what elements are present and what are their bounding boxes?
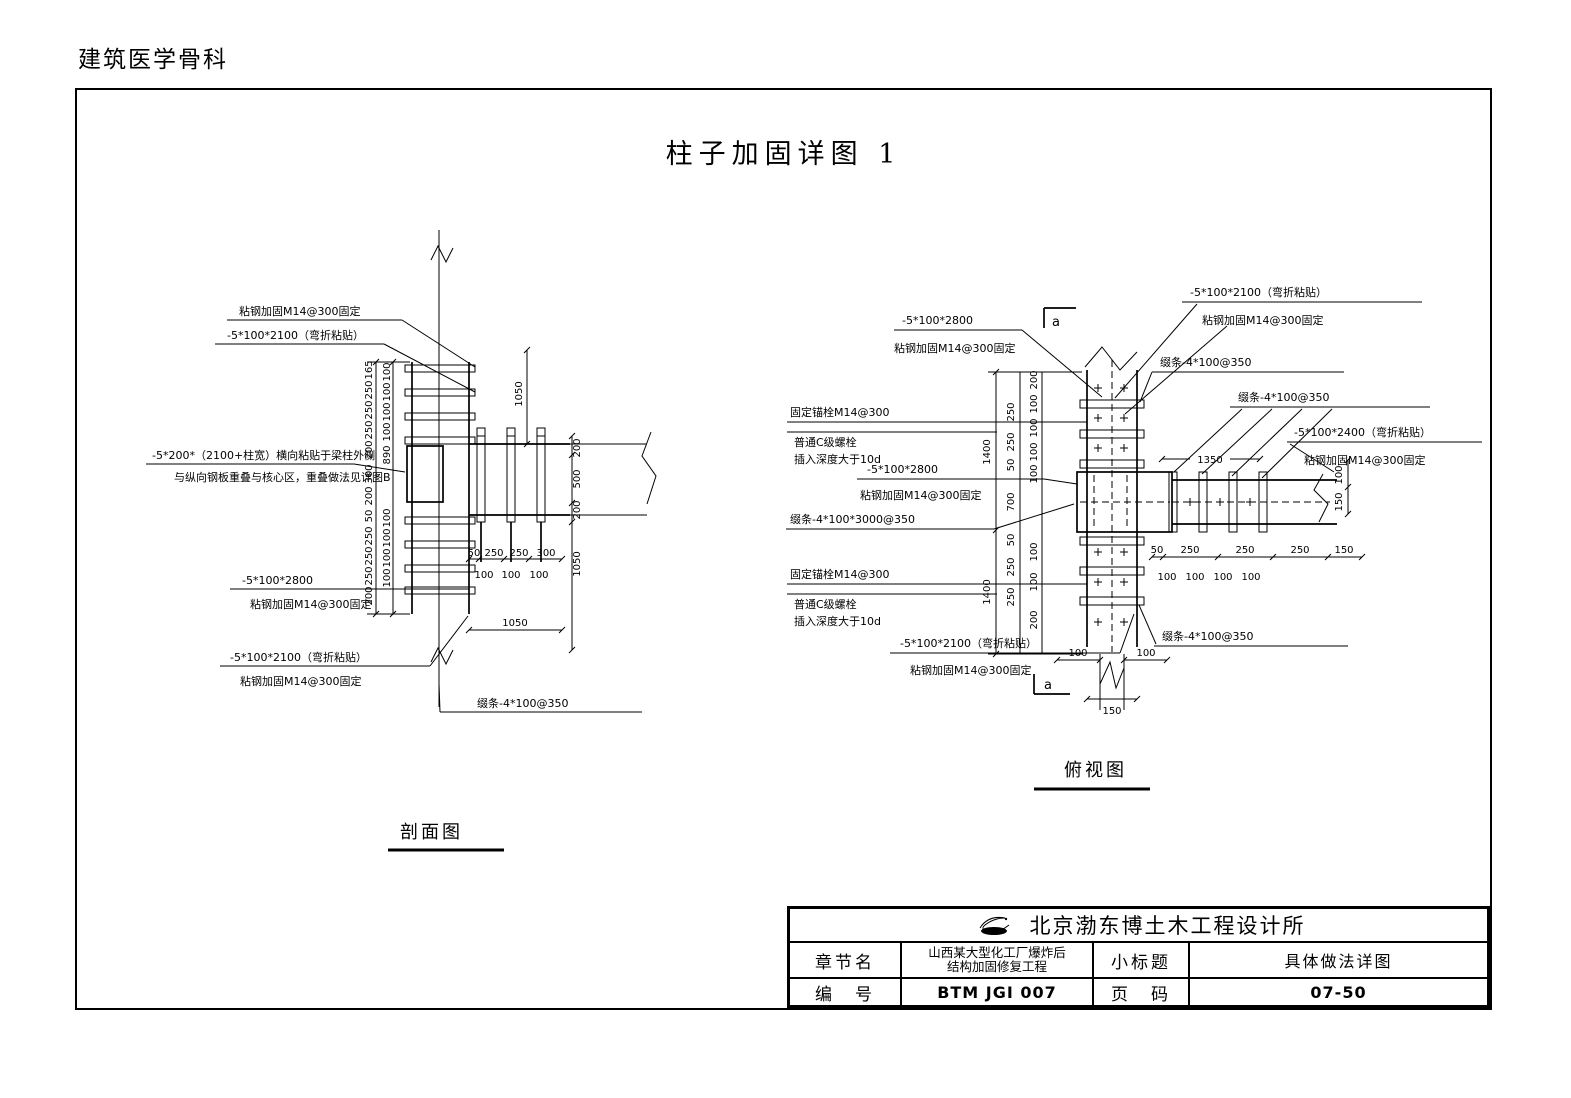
dim-value: 50 <box>1151 545 1164 556</box>
dim-value: 100 <box>1241 572 1260 583</box>
label-bend-2100: -5*100*2100（弯折粘贴） <box>230 650 367 664</box>
dim-value: 100 <box>1334 465 1345 484</box>
label-bend-2100: -5*100*2100（弯折粘贴） <box>1190 285 1327 299</box>
label-glue-fix: 粘钢加固M14@300固定 <box>250 597 371 611</box>
dim-value: 100 <box>382 402 393 421</box>
section-marker-bottom: a <box>1044 678 1052 693</box>
drawing-frame: 柱子加固详图 1 <box>75 88 1492 1010</box>
drawing-title: 柱子加固详图 1 <box>77 132 1490 171</box>
chapter-value: 山西某大型化工厂爆炸后 结构加固修复工程 <box>902 943 1094 979</box>
dim-value: 100 <box>382 508 393 527</box>
dim-value: 100 <box>382 528 393 547</box>
label-anchor: 固定锚栓M14@300 <box>790 567 889 581</box>
dim-value: 890 <box>382 445 393 464</box>
plan-dim-left: 1400 1400 250 250 50 700 50 250 250 200 … <box>982 370 1040 629</box>
dim-value: 100 <box>474 570 493 581</box>
label-batten-350: 缀条-4*100@350 <box>1162 629 1253 643</box>
subtitle-value: 具体做法详图 <box>1190 943 1487 979</box>
section-view-svg: 165 250 250 250 200 300 200 50 250 250 2… <box>102 222 722 902</box>
dim-value: 250 <box>509 548 528 559</box>
number-value: BTM JGI 007 <box>902 979 1094 1005</box>
dim-value: 500 <box>572 469 583 488</box>
label-glue-fix: 粘钢加固M14@300固定 <box>1202 313 1323 327</box>
label-glue-fix: 粘钢加固M14@300固定 <box>860 488 981 502</box>
dim-value: 700 <box>1006 492 1017 511</box>
dim-value: 50 <box>1006 534 1017 547</box>
number-label: 编 号 <box>790 979 902 1005</box>
label-plate-200: -5*200*（2100+柱宽）横向粘贴于梁柱外侧 <box>152 448 375 462</box>
dim-value: 200 <box>1029 370 1040 389</box>
dim-value: 150 <box>1102 706 1121 717</box>
label-plate-2800: -5*100*2800 <box>867 463 938 476</box>
plan-labels: -5*100*2800 粘钢加固M14@300固定 -5*100*2100（弯折… <box>786 285 1482 677</box>
dim-value: 100 <box>1029 572 1040 591</box>
label-bend-2100: -5*100*2100（弯折粘贴） <box>227 328 364 342</box>
company-name: 北京渤东博土木工程设计所 <box>1030 910 1306 940</box>
dim-value: 1050 <box>514 381 525 406</box>
dim-value: 100 <box>1157 572 1176 583</box>
dim-value: 200 <box>572 500 583 519</box>
subtitle-label: 小标题 <box>1094 943 1190 979</box>
dim-value: 250 <box>484 548 503 559</box>
label-bend-2100: -5*100*2100（弯折粘贴） <box>900 636 1037 650</box>
chapter-value-line2: 结构加固修复工程 <box>947 960 1047 974</box>
label-plate-2800: -5*100*2800 <box>902 314 973 327</box>
dim-value: 1050 <box>572 551 583 576</box>
dim-value: 100 <box>501 570 520 581</box>
dim-value: 250 <box>1006 557 1017 576</box>
label-glue-fix: 粘钢加固M14@300固定 <box>894 341 1015 355</box>
dim-value: 250 <box>1290 545 1309 556</box>
dim-value: 100 <box>382 422 393 441</box>
label-glue-fix: 粘钢加固M14@300固定 <box>240 674 361 688</box>
label-anchor: 固定锚栓M14@300 <box>790 405 889 419</box>
document-header: 建筑医学骨科 <box>78 40 228 74</box>
page-value: 07-50 <box>1190 979 1487 1005</box>
title-block-row-chapter: 章节名 山西某大型化工厂爆炸后 结构加固修复工程 小标题 具体做法详图 <box>790 943 1487 979</box>
plan-caption: 俯视图 <box>1034 760 1150 789</box>
label-bolt: 普通C级螺栓 <box>794 597 857 611</box>
section-marker-top: a <box>1052 315 1060 330</box>
dim-value: 100 <box>1029 418 1040 437</box>
dim-value: 1350 <box>1197 455 1222 466</box>
page-label: 页 码 <box>1094 979 1190 1005</box>
dim-value: 100 <box>1029 442 1040 461</box>
label-batten-3000: 缀条-4*100*3000@350 <box>790 512 915 526</box>
dim-value: 250 <box>364 420 375 439</box>
section-caption: 剖面图 <box>388 822 504 850</box>
dim-value: 100 <box>1213 572 1232 583</box>
dim-value: 100 <box>1029 542 1040 561</box>
plan-dim-right: 1350 100 150 50 250 250 250 150 100 100 … <box>1068 455 1353 717</box>
dim-value: 250 <box>1180 545 1199 556</box>
dim-value: 250 <box>364 526 375 545</box>
dim-value: 250 <box>364 566 375 585</box>
dim-value: 300 <box>536 548 555 559</box>
label-plate-2800: -5*100*2800 <box>242 574 313 587</box>
dim-value: 200 <box>364 486 375 505</box>
title-block: 北京渤东博土木工程设计所 章节名 山西某大型化工厂爆炸后 结构加固修复工程 小标… <box>787 906 1490 1008</box>
dim-value: 1400 <box>982 439 993 464</box>
dim-value: 100 <box>1029 394 1040 413</box>
dim-value: 150 <box>1334 492 1345 511</box>
dim-value: 100 <box>1185 572 1204 583</box>
chapter-value-line1: 山西某大型化工厂爆炸后 <box>928 946 1066 960</box>
dim-value: 50 <box>364 510 375 523</box>
dim-value: 250 <box>1006 587 1017 606</box>
dim-value: 100 <box>382 568 393 587</box>
dim-value: 250 <box>1235 545 1254 556</box>
label-bolt-depth: 插入深度大于10d <box>794 614 881 628</box>
section-beam-geometry <box>469 428 656 562</box>
plan-column-geometry <box>1077 347 1172 710</box>
title-block-company-row: 北京渤东博土木工程设计所 <box>790 909 1487 943</box>
dim-value: 50 <box>468 548 481 559</box>
dim-value: 165 <box>364 360 375 379</box>
dim-value: 250 <box>1006 402 1017 421</box>
dim-value: 250 <box>364 380 375 399</box>
title-block-row-number: 编 号 BTM JGI 007 页 码 07-50 <box>790 979 1487 1005</box>
label-bend-2400: -5*100*2400（弯折粘贴） <box>1294 425 1431 439</box>
dim-value: 100 <box>1136 648 1155 659</box>
sheet: 建筑医学骨科 柱子加固详图 1 <box>0 0 1571 1098</box>
dim-value: 1400 <box>982 579 993 604</box>
dim-value: 1050 <box>502 618 527 629</box>
plan-view-svg: a a 1400 14 <box>782 262 1482 812</box>
section-dimension-lines <box>367 347 575 653</box>
dim-value: 200 <box>1029 610 1040 629</box>
section-labels: 粘钢加固M14@300固定 -5*100*2100（弯折粘贴） -5*200*（… <box>146 304 642 712</box>
plan-section-markers: a a <box>1034 308 1076 694</box>
dim-value: 250 <box>364 546 375 565</box>
label-glue-fix: 粘钢加固M14@300固定 <box>910 663 1031 677</box>
label-batten: 缀条-4*100@350 <box>477 696 568 710</box>
dim-value: 150 <box>1334 545 1353 556</box>
chapter-label: 章节名 <box>790 943 902 979</box>
view-caption: 剖面图 <box>400 822 463 843</box>
dim-value: 250 <box>1006 432 1017 451</box>
label-bolt: 普通C级螺栓 <box>794 435 857 449</box>
label-plate-200-note: 与纵向钢板重叠与核心区，重叠做法见详图B <box>174 470 391 484</box>
dim-value: 100 <box>382 548 393 567</box>
dim-value: 100 <box>1029 464 1040 483</box>
dim-value: 250 <box>364 400 375 419</box>
section-column-geometry <box>405 230 475 707</box>
label-batten-350: 缀条-4*100@350 <box>1160 355 1251 369</box>
label-glue-fix: 粘钢加固M14@300固定 <box>239 304 360 318</box>
company-logo-icon <box>972 912 1018 938</box>
plan-dimension-lines <box>988 369 1365 702</box>
dim-value: 100 <box>529 570 548 581</box>
label-batten-350: 缀条-4*100@350 <box>1238 390 1329 404</box>
dim-value: 50 <box>1006 459 1017 472</box>
dim-value: 100 <box>382 362 393 381</box>
plan-beam-geometry <box>1169 472 1337 532</box>
dim-value: 200 <box>572 438 583 457</box>
dim-value: 100 <box>382 382 393 401</box>
view-caption: 俯视图 <box>1064 760 1127 781</box>
